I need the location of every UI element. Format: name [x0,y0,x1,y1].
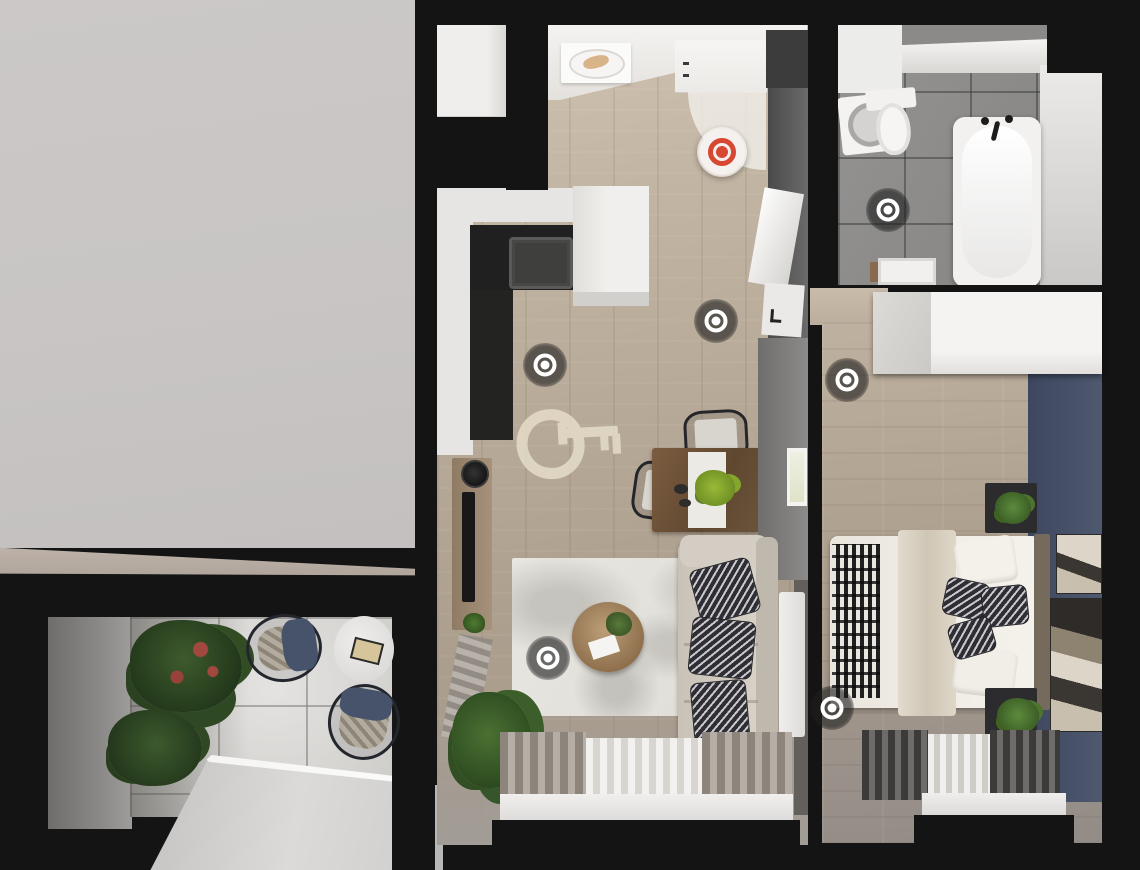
kitchen-counter-side [437,188,473,455]
balcony-plant-large [130,620,242,712]
key-icon [514,399,629,469]
table-dishes [674,484,688,494]
living-window-sheer [586,738,702,802]
viewpoint-marker-hallway[interactable] [694,299,738,343]
key-shaft [560,426,618,439]
key-tooth [600,434,609,450]
bedroom [822,322,1102,843]
bedroom-wardrobe [873,292,1102,374]
kitchen-sink [509,237,573,289]
bathtub-faucet [981,113,1017,139]
nightstand-plant [995,492,1031,524]
bathroom-wall-notch [1047,25,1102,73]
hall-shoe-shelf [761,283,805,338]
toilet [865,87,921,161]
sofa [678,535,778,763]
bed-blanket-fold [898,530,956,716]
living-window-drape-left [500,732,586,802]
sliding-door-panel [779,592,805,737]
bedroom-window-drape-right [990,730,1060,800]
viewpoint-marker-living-room[interactable] [526,636,570,680]
toilet-bowl [874,102,912,157]
bathroom-lit-wall [1040,65,1102,285]
bedroom-window-sill [922,793,1066,815]
washer-cabinet [838,25,902,93]
sofa-back [756,537,778,761]
bedroom-window-drape-left [862,730,928,800]
living-window-drape-right [702,732,792,802]
exterior-ledge [0,546,415,576]
viewpoint-marker-bedroom-a[interactable] [825,358,869,402]
bed-runner-blanket [832,544,880,698]
table-plant [695,470,735,506]
sink-cabinet-side [870,262,878,282]
fridge [437,25,508,118]
nightstand-plant [997,698,1039,734]
living-window-wall [492,820,800,845]
balcony-plant-small [108,710,202,786]
bedroom-window-wall [914,815,1074,843]
floorplan-viewer [0,0,1140,870]
hall-wall-top [766,30,808,88]
bathroom-sink-cabinet [878,258,936,285]
key-tooth [612,433,621,453]
sofa-pillow [687,616,757,680]
viewpoint-marker-entrance-active[interactable] [697,127,747,177]
kitchen-countertop-dark-side [470,290,513,440]
viewpoint-marker-bathroom[interactable] [866,188,910,232]
coffee-table [572,602,644,672]
viewpoint-marker-kitchen[interactable] [523,343,567,387]
bed-headboard [1034,534,1050,710]
living-window-sill [500,794,793,821]
tv-console [452,458,492,630]
wall-picture-small [787,448,807,506]
kitchen-wall-top [506,0,548,190]
viewpoint-marker-bedroom-b[interactable] [810,686,854,730]
entrance-shelf-with-plate [561,43,631,83]
bedroom-window-sheer [928,734,990,800]
exterior-wall [0,0,415,548]
wall-artwork-small [1056,534,1102,594]
dining-table [652,448,760,532]
console-plant [463,613,485,633]
kitchen-tall-cabinet [573,186,649,292]
bathtub [953,117,1041,285]
wall-artwork-large [1050,598,1102,732]
key-bow [515,407,587,480]
